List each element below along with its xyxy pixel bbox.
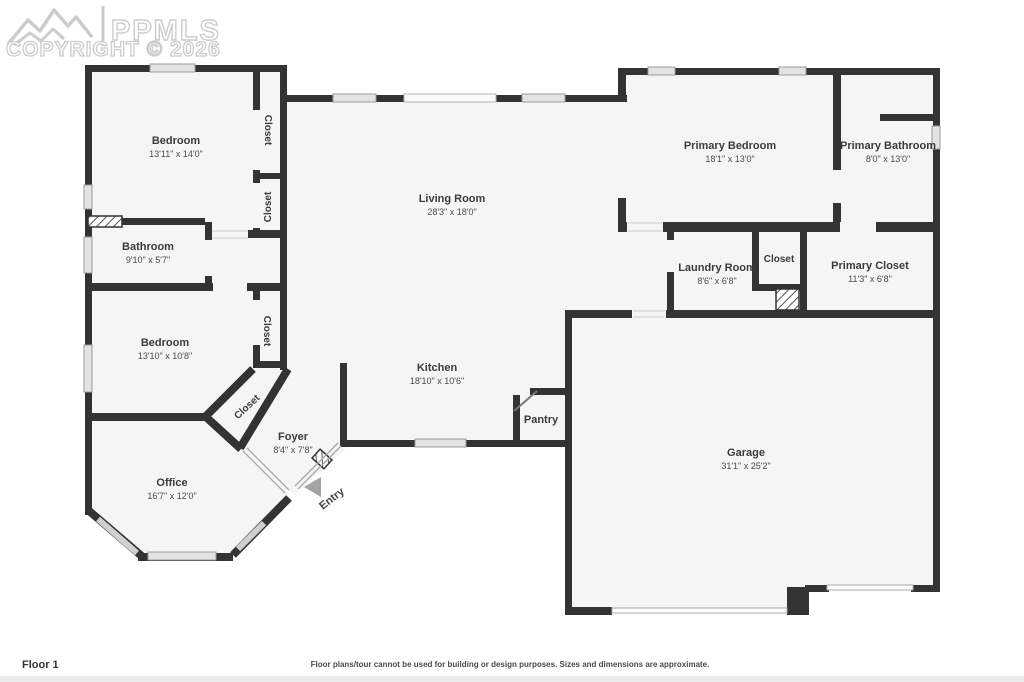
room-dims-bedroom-2: 13'10" x 10'8" (138, 351, 192, 361)
window (84, 237, 92, 273)
door-opening (253, 110, 260, 170)
window (148, 552, 216, 560)
wall (565, 312, 572, 612)
wall (911, 585, 940, 592)
disclaimer-text: Floor plans/tour cannot be used for buil… (311, 660, 710, 669)
room-label-pantry: Pantry (524, 414, 559, 426)
wall (618, 222, 940, 232)
door-opening (205, 240, 212, 276)
window (84, 345, 92, 392)
room-label-foyer: Foyer (278, 431, 309, 443)
room-label-living-room: Living Room (419, 193, 486, 205)
wall (85, 413, 207, 421)
floor-area (287, 232, 667, 312)
room-label-primary-bedroom: Primary Bedroom (684, 140, 777, 152)
hatch-area (88, 216, 122, 227)
wall (565, 310, 940, 318)
window (84, 185, 92, 209)
wall (565, 607, 612, 615)
wall (280, 65, 287, 370)
door-opening (213, 283, 247, 291)
watermark: PPMLS COPYRIGHT © 2026 (6, 6, 221, 61)
room-dims-garage: 31'1" x 25'2" (721, 461, 770, 471)
room-label-bathroom: Bathroom (122, 241, 174, 253)
wall (933, 232, 940, 592)
room-dims-bedroom-1: 13'11" x 14'0" (149, 149, 203, 159)
hatch-area (776, 289, 799, 310)
door-opening (253, 183, 260, 228)
window (522, 94, 565, 102)
room-label-closet-1: Closet (262, 115, 273, 146)
watermark-copyright: COPYRIGHT © 2026 (6, 38, 221, 61)
room-dims-laundry-room: 8'6" x 6'8" (697, 276, 736, 286)
window (779, 67, 806, 75)
footer-strip (0, 676, 1024, 682)
room-dims-office: 16'7" x 12'0" (147, 491, 196, 501)
room-label-office: Office (156, 477, 187, 489)
door-opening (840, 222, 876, 232)
wall (752, 232, 759, 290)
room-label-closet-3: Closet (764, 254, 795, 265)
wall (805, 585, 829, 592)
wall (880, 114, 940, 121)
room-label-bedroom-2: Bedroom (141, 337, 190, 349)
window (150, 64, 195, 72)
door-opening (667, 240, 674, 272)
wall (800, 232, 807, 312)
window (404, 94, 496, 102)
room-label-primary-closet: Primary Closet (831, 260, 909, 272)
door-opening (833, 170, 841, 203)
floor-label: Floor 1 (22, 659, 59, 671)
window (415, 439, 466, 447)
room-dims-living-room: 28'3" x 18'0" (427, 207, 476, 217)
room-dims-primary-bathroom: 8'0" x 13'0" (866, 154, 910, 164)
room-dims-primary-bedroom: 18'1" x 13'0" (705, 154, 754, 164)
room-label-kitchen: Kitchen (417, 362, 458, 374)
room-label-garage: Garage (727, 447, 765, 459)
window (333, 94, 376, 102)
room-label-entry: Entry (317, 485, 347, 512)
wall (248, 230, 287, 238)
room-dims-foyer: 8'4" x 7'8" (273, 445, 312, 455)
floor-plan-page: Bedroom 13'11" x 14'0" Closet Closet Liv… (0, 0, 1024, 682)
room-label-primary-bathroom: Primary Bathroom (840, 140, 936, 152)
room-dims-primary-closet: 11'3" x 6'8" (848, 274, 892, 284)
room-label-closet-2: Closet (263, 191, 274, 222)
room-label-closet-4: Closet (261, 316, 272, 347)
garage-door (827, 585, 913, 590)
door-opening (253, 300, 260, 345)
room-label-bedroom-1: Bedroom (152, 135, 201, 147)
window (648, 67, 675, 75)
wall (253, 361, 287, 368)
footer: Floor 1 Floor plans/tour cannot be used … (0, 659, 1024, 682)
garage-door (612, 608, 787, 613)
room-dims-bathroom: 9'10" x 5'7" (126, 255, 170, 265)
wall (85, 283, 287, 291)
room-dims-kitchen: 18'10" x 10'6" (410, 376, 464, 386)
room-label-laundry-room: Laundry Room (678, 262, 756, 274)
wall (340, 363, 347, 447)
floor-areas (85, 65, 940, 612)
floor-plan-svg: Bedroom 13'11" x 14'0" Closet Closet Liv… (0, 0, 1024, 682)
wall (513, 395, 520, 447)
